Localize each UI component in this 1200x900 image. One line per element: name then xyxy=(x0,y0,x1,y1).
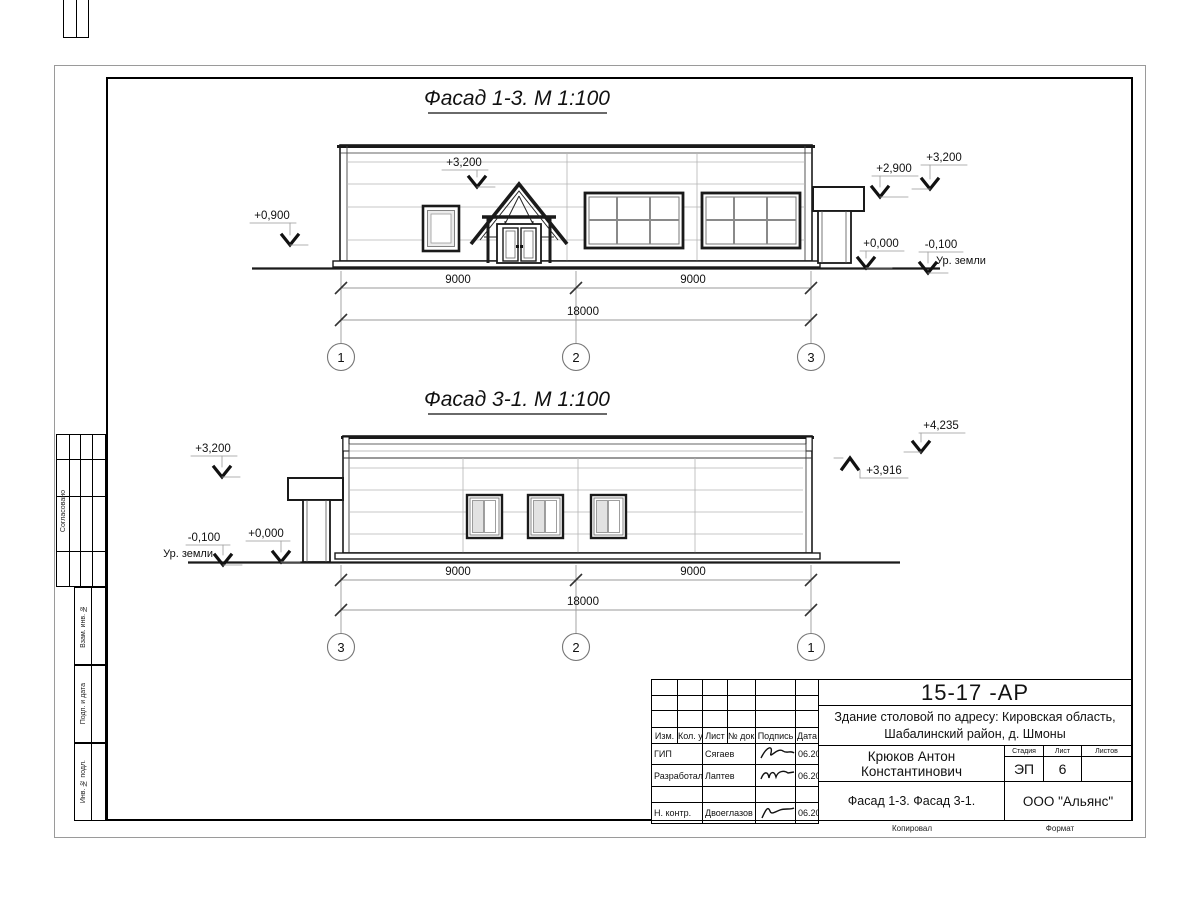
signature-ncontrol xyxy=(756,803,796,824)
facade-1-3-drawing: Фасад 1-3. М 1:100 xyxy=(250,87,986,371)
col-izm: Изм. xyxy=(652,728,678,744)
sidebar-vzam-block: Взам. инв. № xyxy=(74,587,106,665)
dim-9000-left: 9000 xyxy=(445,274,471,286)
format-label: Формат xyxy=(1030,824,1090,833)
mark-0000: +0,000 xyxy=(246,528,300,562)
svg-text:+2,900: +2,900 xyxy=(876,163,912,175)
date-gip: 06.2017 xyxy=(796,744,819,765)
mark-4235: +4,235 xyxy=(904,420,965,452)
sidebar-inv-block: Инв. № подл. xyxy=(74,743,106,821)
sheets-total xyxy=(1081,756,1132,782)
mark-0100: -0,100 Ур. земли xyxy=(163,532,242,565)
col-doc: № док. xyxy=(728,728,756,744)
window-row xyxy=(467,495,626,538)
drawing-page: Фасад 1-3. М 1:100 xyxy=(0,0,1200,900)
svg-text:+0,900: +0,900 xyxy=(254,210,290,222)
signature-developer xyxy=(756,765,796,787)
dimensions-3-1: 9000 9000 18000 3 2 1 xyxy=(328,565,825,661)
dim-18000: 18000 xyxy=(567,306,599,318)
facade-1-3-title: Фасад 1-3. М 1:100 xyxy=(424,87,610,110)
mark-0000: +0,000 xyxy=(858,238,904,268)
drawing-title: Фасад 1-3. Фасад 3-1. xyxy=(818,781,1005,821)
ground-level-label: Ур. земли xyxy=(163,548,213,560)
svg-text:+3,200: +3,200 xyxy=(446,157,482,169)
svg-text:+3,200: +3,200 xyxy=(195,443,231,455)
svg-text:+3,916: +3,916 xyxy=(866,465,902,477)
sidebar-agreement-table: Согласовано xyxy=(56,434,106,587)
stage-value: ЭП xyxy=(1004,756,1044,782)
dim-18000: 18000 xyxy=(567,596,599,608)
svg-text:-0,100: -0,100 xyxy=(925,239,958,251)
mark-0900: +0,900 xyxy=(250,210,308,245)
small-window xyxy=(423,206,459,251)
axis-3: 3 xyxy=(337,640,344,655)
dim-9000-right: 9000 xyxy=(680,566,706,578)
dimensions-1-3: 9000 9000 18000 1 2 3 xyxy=(328,271,825,371)
sidebar-podp-block: Подп. и дата xyxy=(74,665,106,743)
svg-text:+0,000: +0,000 xyxy=(248,528,284,540)
left-porch xyxy=(288,478,343,562)
svg-text:+0,000: +0,000 xyxy=(863,238,899,250)
svg-text:+3,200: +3,200 xyxy=(926,152,962,164)
agreed-label: Согласовано xyxy=(60,490,67,532)
name-gip: Сягаев xyxy=(703,744,756,765)
axis-2: 2 xyxy=(572,640,579,655)
sheet-number: 6 xyxy=(1043,756,1082,782)
signatures-table: Изм. Кол. уч. Лист № док. Подпись Дата Г… xyxy=(651,679,819,824)
dim-9000-right: 9000 xyxy=(680,274,706,286)
name-ncontrol: Двоеглазов xyxy=(703,803,756,824)
axis-bubbles-3-1: 3 2 1 xyxy=(328,634,825,661)
mark-3200: +3,200 xyxy=(191,443,240,477)
chief-name: Крюков Антон Константинович xyxy=(818,745,1005,782)
signature-gip xyxy=(756,744,796,765)
role-ncontrol: Н. контр. xyxy=(652,803,703,824)
copied-label: Копировал xyxy=(876,824,948,833)
axis-1: 1 xyxy=(337,350,344,365)
big-window-2 xyxy=(702,193,800,248)
title-block: Изм. Кол. уч. Лист № док. Подпись Дата Г… xyxy=(651,679,1133,821)
mark-3916: +3,916 xyxy=(834,458,908,478)
podp-label: Подп. и дата xyxy=(80,683,87,724)
inv-label: Инв. № подл. xyxy=(80,760,87,803)
svg-text:-0,100: -0,100 xyxy=(188,532,221,544)
ground-level-label: Ур. земли xyxy=(936,255,986,267)
name-developer: Лаптев xyxy=(703,765,756,787)
facade-3-1-drawing: Фасад 3-1. М 1:100 xyxy=(163,388,965,661)
svg-text:+4,235: +4,235 xyxy=(923,420,959,432)
company-name: ООО "Альянс" xyxy=(1004,781,1132,821)
big-window-1 xyxy=(585,193,683,248)
axis-3: 3 xyxy=(807,350,814,365)
col-date: Дата xyxy=(796,728,819,744)
col-sign: Подпись xyxy=(756,728,796,744)
facade-3-1-title: Фасад 3-1. М 1:100 xyxy=(424,388,610,411)
document-number: 15-17 -АР xyxy=(818,679,1132,706)
axis-bubbles-1-3: 1 2 3 xyxy=(328,344,825,371)
mark-2900: +2,900 xyxy=(872,163,918,197)
role-developer: Разработал xyxy=(652,765,703,787)
col-list: Лист xyxy=(703,728,728,744)
right-annex xyxy=(813,187,864,263)
date-ncontrol: 06.2017 xyxy=(796,803,819,824)
col-kol: Кол. уч. xyxy=(678,728,703,744)
project-name: Здание столовой по адресу: Кировская обл… xyxy=(818,705,1132,746)
stage-table: Стадия Лист Листов ЭП 6 xyxy=(1004,745,1132,782)
axis-2: 2 xyxy=(572,350,579,365)
axis-1: 1 xyxy=(807,640,814,655)
dim-9000-left: 9000 xyxy=(445,566,471,578)
role-gip: ГИП xyxy=(652,744,703,765)
mark-3200-right: +3,200 xyxy=(912,152,967,189)
date-developer: 06.2017 xyxy=(796,765,819,787)
vzam-label: Взам. инв. № xyxy=(80,605,87,648)
